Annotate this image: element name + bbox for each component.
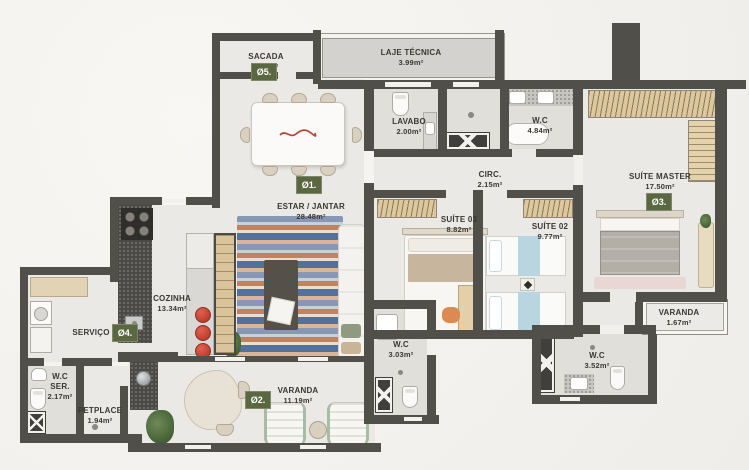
room-area: 28.48m² [277, 212, 345, 221]
wall [636, 292, 727, 302]
wall [364, 362, 374, 415]
sink [425, 122, 435, 135]
room-name: SUÍTE 02 [532, 222, 568, 232]
room-name: W.C [528, 116, 553, 126]
dining-chair [240, 127, 250, 143]
room-name: VARANDA [659, 308, 700, 318]
wall [427, 355, 436, 424]
decor-item [523, 281, 531, 289]
room-floor-hall [583, 302, 643, 325]
room-label-cozinha: COZINHA 13.34m² [153, 294, 191, 313]
washing-machine [30, 301, 52, 325]
dining-chair [291, 93, 307, 103]
wall [715, 87, 727, 302]
room-name: LAJE TÉCNICA [381, 48, 442, 58]
window [185, 445, 211, 449]
wardrobe [377, 199, 437, 218]
wall [76, 366, 84, 443]
bedside-rug [594, 277, 686, 289]
wall [573, 89, 583, 155]
bar-stool [195, 307, 211, 323]
wall [438, 89, 447, 149]
washer-door [34, 307, 48, 321]
cooktop [121, 208, 153, 240]
room-area: 3.99m² [381, 58, 442, 67]
grill-counter [130, 362, 158, 410]
wall [374, 190, 446, 198]
window [385, 82, 431, 87]
room-label-wc-303: W.C 3.03m² [389, 340, 414, 359]
bed-headboard [596, 210, 684, 218]
door-leaf [162, 199, 186, 203]
room-name: W.C [585, 351, 610, 361]
window [404, 417, 422, 421]
lounge-chair [327, 402, 369, 446]
room-name: COZINHA [153, 294, 191, 304]
wall [20, 267, 28, 443]
plant [146, 410, 174, 444]
wall [648, 334, 657, 404]
sink [570, 377, 588, 390]
bench [698, 222, 714, 288]
wall [212, 33, 318, 41]
toilet [392, 92, 409, 116]
dining-chair [320, 93, 336, 103]
serving-tray [267, 297, 295, 325]
room-area: 2.15m² [478, 180, 503, 189]
room-label-laje-tecnica: LAJE TÉCNICA 3.99m² [381, 48, 442, 67]
room-label-servico: SERVIÇO [72, 328, 109, 338]
grill-sink [136, 371, 151, 386]
pouf [442, 307, 460, 323]
sliding-door [215, 357, 245, 361]
nightstand [520, 278, 535, 291]
wall [28, 358, 44, 366]
wall [532, 325, 600, 334]
wall [500, 89, 509, 149]
room-name: SACADA [248, 52, 283, 62]
sofa-pillow [341, 324, 361, 338]
bed-pillow [489, 240, 502, 272]
wall [212, 33, 220, 208]
outdoor-table [184, 370, 242, 430]
wall [178, 356, 374, 362]
shower-knob [590, 345, 595, 350]
bar-stool [195, 325, 211, 341]
wall [20, 267, 112, 275]
room-marker-1: Ø1. [296, 176, 322, 194]
room-label-varanda: VARANDA 11.19m² [278, 386, 319, 405]
wardrobe-shelf [688, 120, 716, 182]
sofa [338, 224, 366, 360]
laundry-cabinet [30, 327, 52, 353]
room-marker-4: Ø4. [112, 324, 138, 342]
window [300, 445, 326, 449]
wall [364, 415, 439, 424]
bed-blanket [408, 254, 482, 282]
room-label-suite-master: SUÍTE MASTER 17.50m² [629, 172, 691, 191]
sofa-pillow [341, 342, 361, 354]
room-label-suite-03: SUÍTE 03 8.82m² [441, 215, 477, 234]
wall [635, 302, 643, 325]
pantry-shelves [216, 235, 234, 353]
window [453, 82, 479, 87]
room-label-circ: CIRC. 2.15m² [478, 170, 503, 189]
room-label-wc-servico: W.C SER. 2.17m² [43, 372, 77, 401]
room-name: VARANDA [278, 386, 319, 396]
room-area: 3.03m² [389, 350, 414, 359]
bed-pillow [489, 296, 502, 330]
side-table [309, 421, 327, 439]
room-area: 4.84m² [528, 126, 553, 135]
shower [539, 334, 554, 392]
wall [495, 30, 504, 80]
room-label-estar-jantar: ESTAR / JANTAR 28.48m² [277, 202, 345, 221]
room-label-varanda-master: VARANDA 1.67m² [659, 308, 700, 327]
fridge [186, 233, 214, 269]
room-name: SUÍTE MASTER [629, 172, 691, 182]
wall [313, 30, 321, 84]
room-label-wc-352: W.C 3.52m² [585, 351, 610, 370]
room-name: PETPLACE [78, 406, 122, 416]
wall [318, 80, 746, 89]
sink [537, 91, 554, 104]
room-marker-3: Ø3. [646, 193, 672, 211]
room-name: SERVIÇO [72, 328, 109, 338]
wall [536, 149, 573, 157]
wall [612, 23, 640, 80]
shower-knob [398, 370, 403, 375]
wall [374, 149, 512, 157]
double-bed [600, 231, 680, 275]
room-marker-5: Ø5. [251, 63, 277, 81]
wall [532, 325, 541, 404]
laundry-counter [30, 277, 88, 297]
table-decor [278, 127, 318, 141]
room-area: 3.52m² [585, 361, 610, 370]
wall [573, 185, 583, 337]
wall [62, 358, 112, 366]
wall [427, 300, 436, 333]
shower [447, 133, 489, 149]
wall [583, 292, 610, 302]
room-marker-2: Ø2. [245, 391, 271, 409]
plant [700, 214, 711, 228]
sliding-door [298, 357, 328, 361]
toilet [402, 386, 418, 408]
wall [118, 352, 178, 362]
dining-table [251, 102, 345, 166]
room-label-petplace: PETPLACE 1.94m² [78, 406, 122, 425]
room-label-lavabo: LAVABO 2.00m² [392, 117, 426, 136]
wall [20, 434, 142, 443]
room-area: 1.67m² [659, 318, 700, 327]
room-name: W.C SER. [43, 372, 77, 392]
wardrobe [588, 90, 716, 118]
wall [507, 190, 574, 198]
room-area: 8.82m² [441, 225, 477, 234]
room-name: LAVABO [392, 117, 426, 127]
wall [624, 325, 656, 334]
bed-runner [518, 236, 540, 276]
room-name: SUÍTE 03 [441, 215, 477, 225]
room-area: 13.34m² [153, 304, 191, 313]
floor-plan: SACADA 3.32m² LAJE TÉCNICA 3.99m² LAVABO… [0, 0, 749, 470]
wall [364, 300, 436, 309]
room-area: 2.00m² [392, 127, 426, 136]
wall [473, 190, 483, 198]
room-name: W.C [389, 340, 414, 350]
wall [532, 395, 656, 404]
wall [186, 197, 220, 205]
room-label-suite-02: SUÍTE 02 9.77m² [532, 222, 568, 241]
room-name: CIRC. [478, 170, 503, 180]
room-name: ESTAR / JANTAR [277, 202, 345, 212]
room-area: 11.19m² [278, 396, 319, 405]
window [560, 397, 580, 401]
bed-pillows [408, 238, 482, 252]
bed-pillows [600, 218, 680, 231]
room-area: 2.17m² [43, 392, 77, 401]
pantry-cabinet [214, 233, 236, 355]
wardrobe [523, 199, 573, 218]
room-area: 9.77m² [532, 232, 568, 241]
room-label-wc-social: W.C 4.84m² [528, 116, 553, 135]
sink [509, 91, 526, 104]
wall [128, 443, 381, 452]
shower [376, 378, 392, 412]
shower [28, 412, 45, 433]
shower-knob [468, 112, 474, 118]
toilet [610, 366, 625, 390]
room-area: 17.50m² [629, 182, 691, 191]
room-area: 1.94m² [78, 416, 122, 425]
dining-chair [262, 93, 278, 103]
wall [364, 89, 374, 151]
